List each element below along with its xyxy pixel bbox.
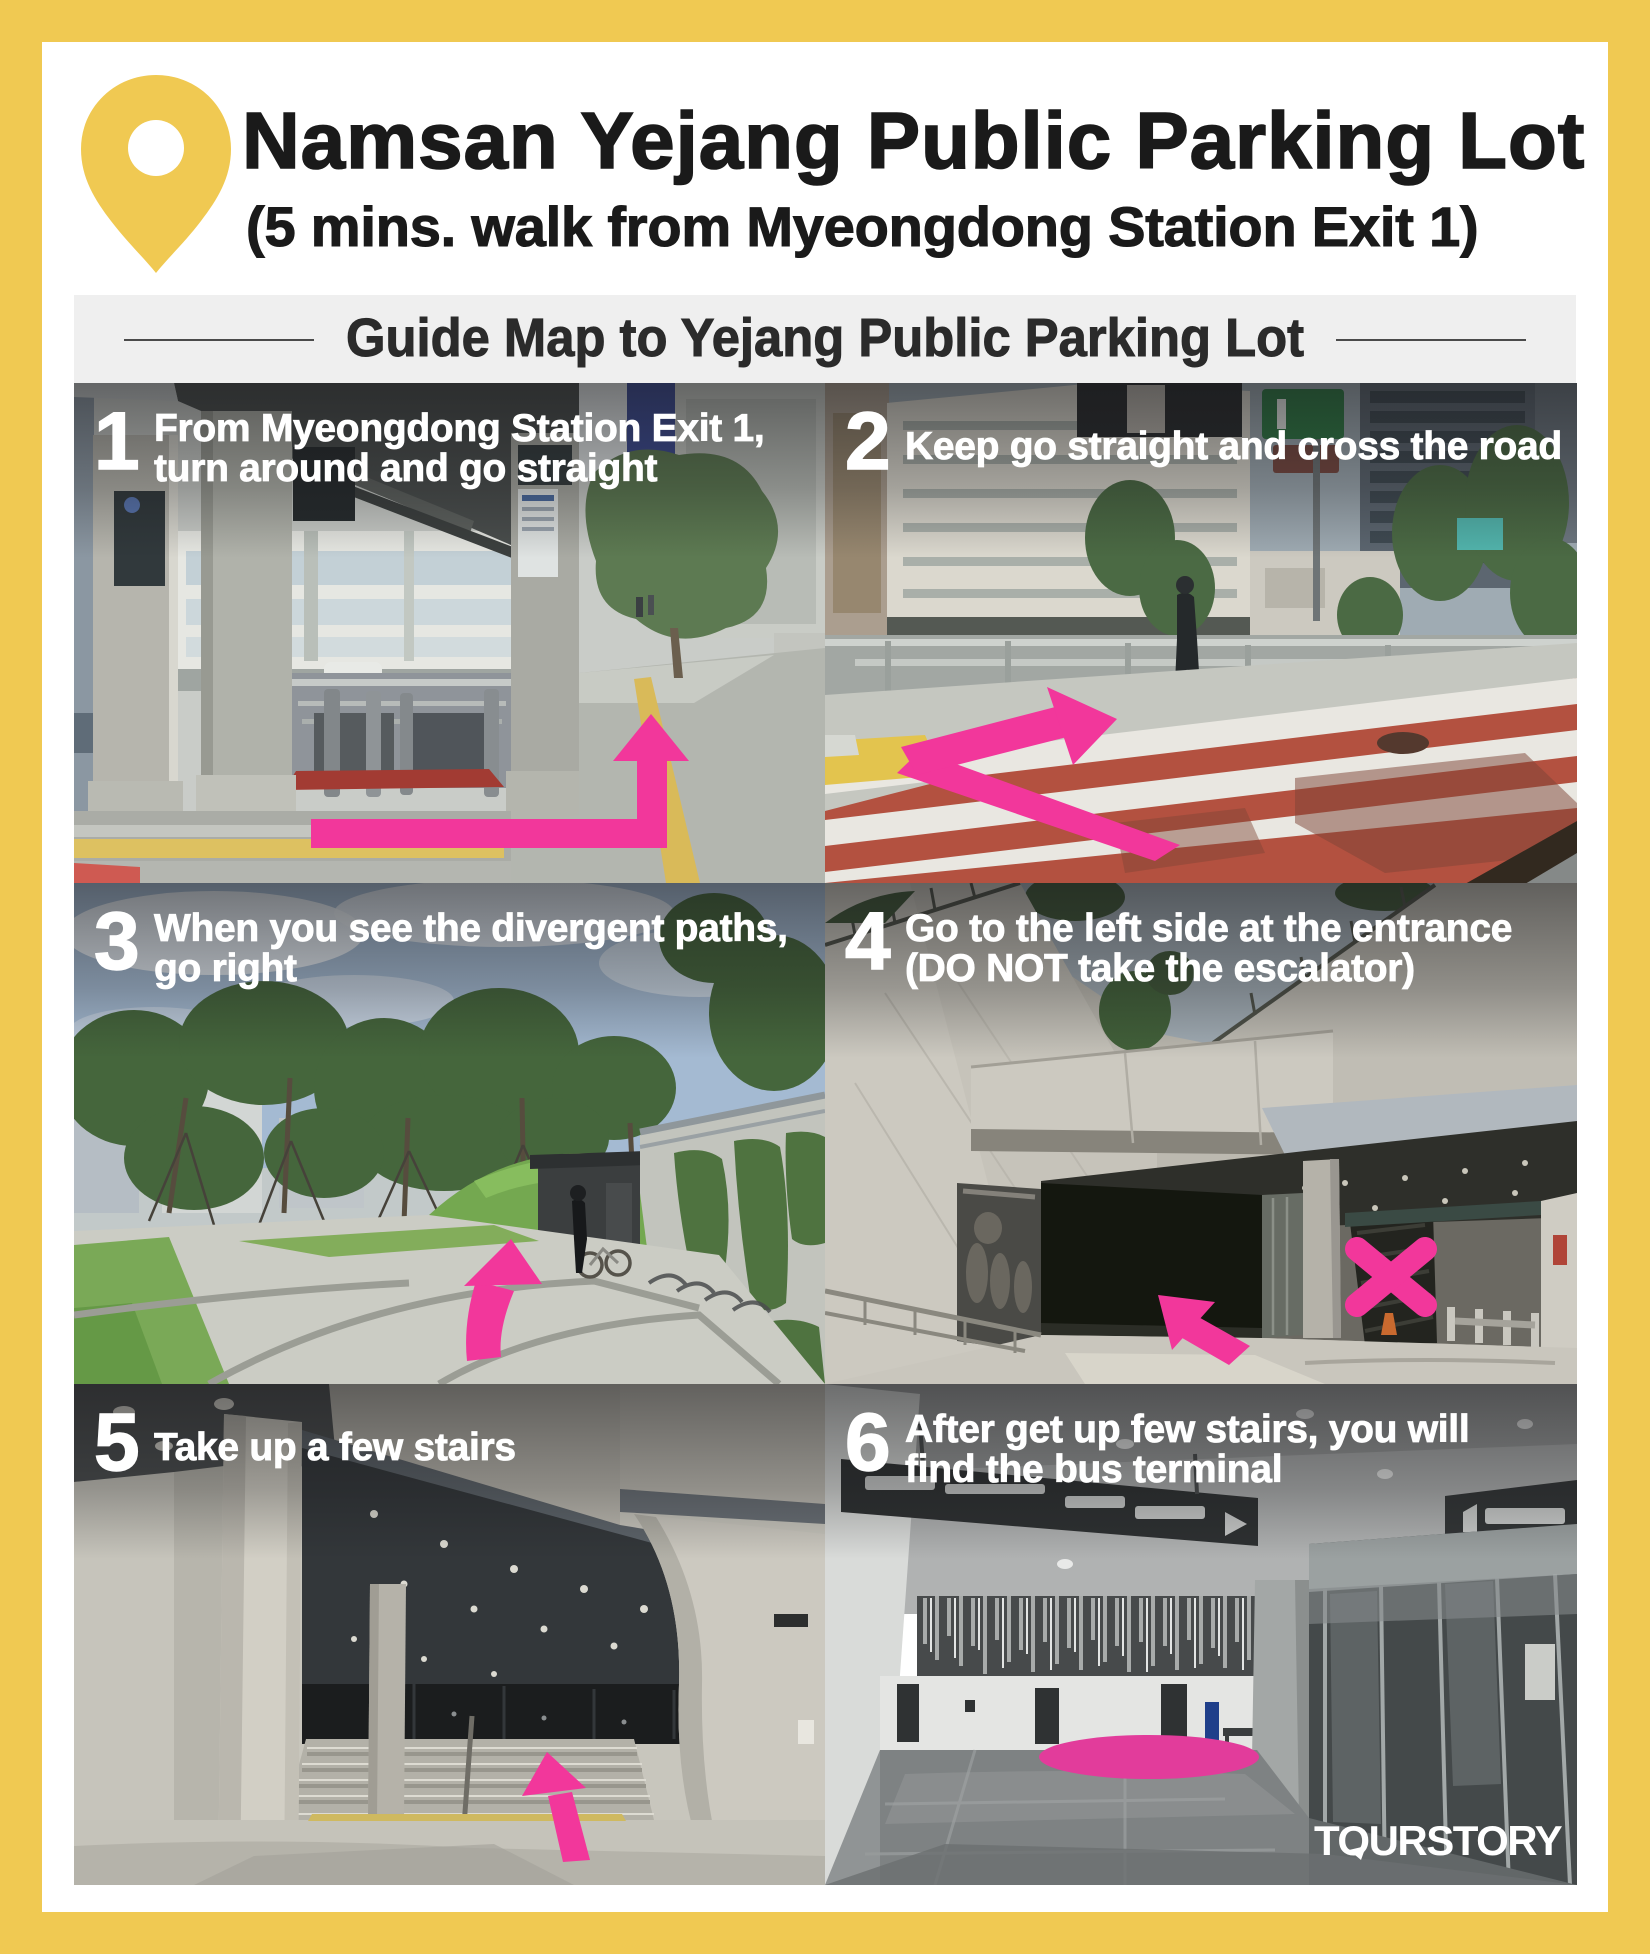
svg-text:TOURSTORY: TOURSTORY [1314, 1817, 1563, 1864]
